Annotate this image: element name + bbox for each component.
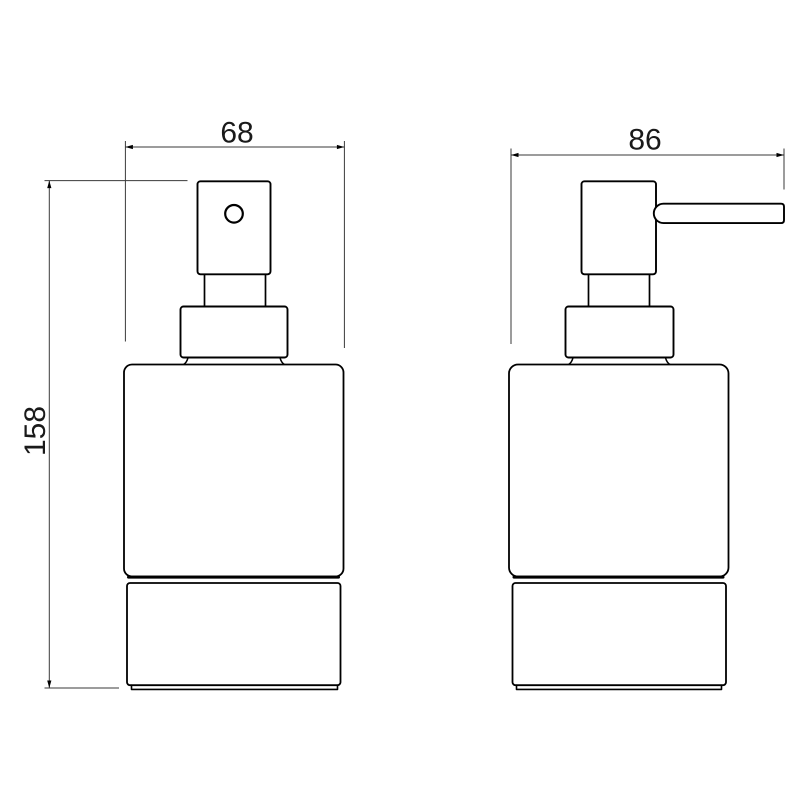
- svg-text:68: 68: [220, 117, 253, 150]
- svg-text:158: 158: [19, 406, 52, 456]
- svg-text:86: 86: [628, 124, 661, 157]
